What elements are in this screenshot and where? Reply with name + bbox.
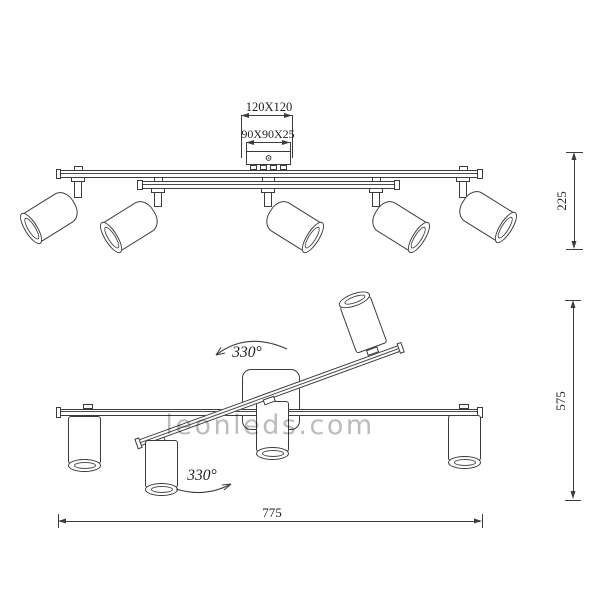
spotlight-cylinder-rotated bbox=[339, 293, 388, 353]
dim-tick-575-top bbox=[565, 300, 581, 301]
rotation-arc-lower bbox=[176, 484, 231, 493]
watermark: leonleds.com bbox=[128, 410, 412, 441]
junction-box bbox=[246, 151, 291, 165]
canopy-plate-dim-label: 120X120 bbox=[243, 100, 295, 115]
main-rail-end-cap bbox=[477, 169, 483, 180]
length-dim-label: 775 bbox=[247, 505, 297, 521]
main-rail-end-cap bbox=[56, 407, 61, 418]
spot-stem-foot bbox=[261, 188, 275, 193]
dim-line-225 bbox=[574, 156, 575, 245]
second-rail-end-cap bbox=[394, 180, 400, 191]
spot-stem-foot bbox=[71, 177, 85, 182]
ceiling-light-dimension-drawing: 120X120 90X90X25 bbox=[0, 0, 600, 600]
dim-tick-775-left bbox=[58, 514, 59, 528]
main-rail bbox=[57, 170, 482, 178]
spot-stem-foot bbox=[456, 177, 470, 182]
second-rail bbox=[138, 181, 400, 189]
dim-line-90 bbox=[246, 142, 290, 143]
dim-line-575 bbox=[573, 304, 574, 495]
rotation-angle-label-lower: 330° bbox=[179, 467, 225, 485]
spotlight-cylinder bbox=[68, 416, 101, 466]
main-rail-end-cap bbox=[56, 169, 61, 180]
ext-line-90-right bbox=[290, 142, 291, 151]
ext-line-90-left bbox=[246, 142, 247, 151]
dim-tick-225-bottom bbox=[566, 249, 583, 250]
dim-tick-575-bottom bbox=[565, 500, 581, 501]
spotlight-cylinder bbox=[448, 415, 481, 463]
dim-tick-225-top bbox=[566, 152, 583, 153]
spot-stem-foot bbox=[369, 188, 383, 193]
junction-box-dim-label: 90X90X25 bbox=[239, 127, 297, 142]
dimension-arrows-overlay bbox=[0, 0, 600, 600]
spot-stem-foot bbox=[151, 188, 165, 193]
second-rail-end-cap bbox=[137, 180, 143, 191]
dim-tick-775-right bbox=[482, 514, 483, 528]
height-dim-label: 575 bbox=[553, 381, 569, 421]
dim-line-120 bbox=[241, 115, 292, 116]
rotation-angle-label-upper: 330° bbox=[224, 344, 270, 362]
spotlight-cylinder bbox=[145, 440, 178, 490]
height-dim-label: 225 bbox=[554, 181, 570, 221]
